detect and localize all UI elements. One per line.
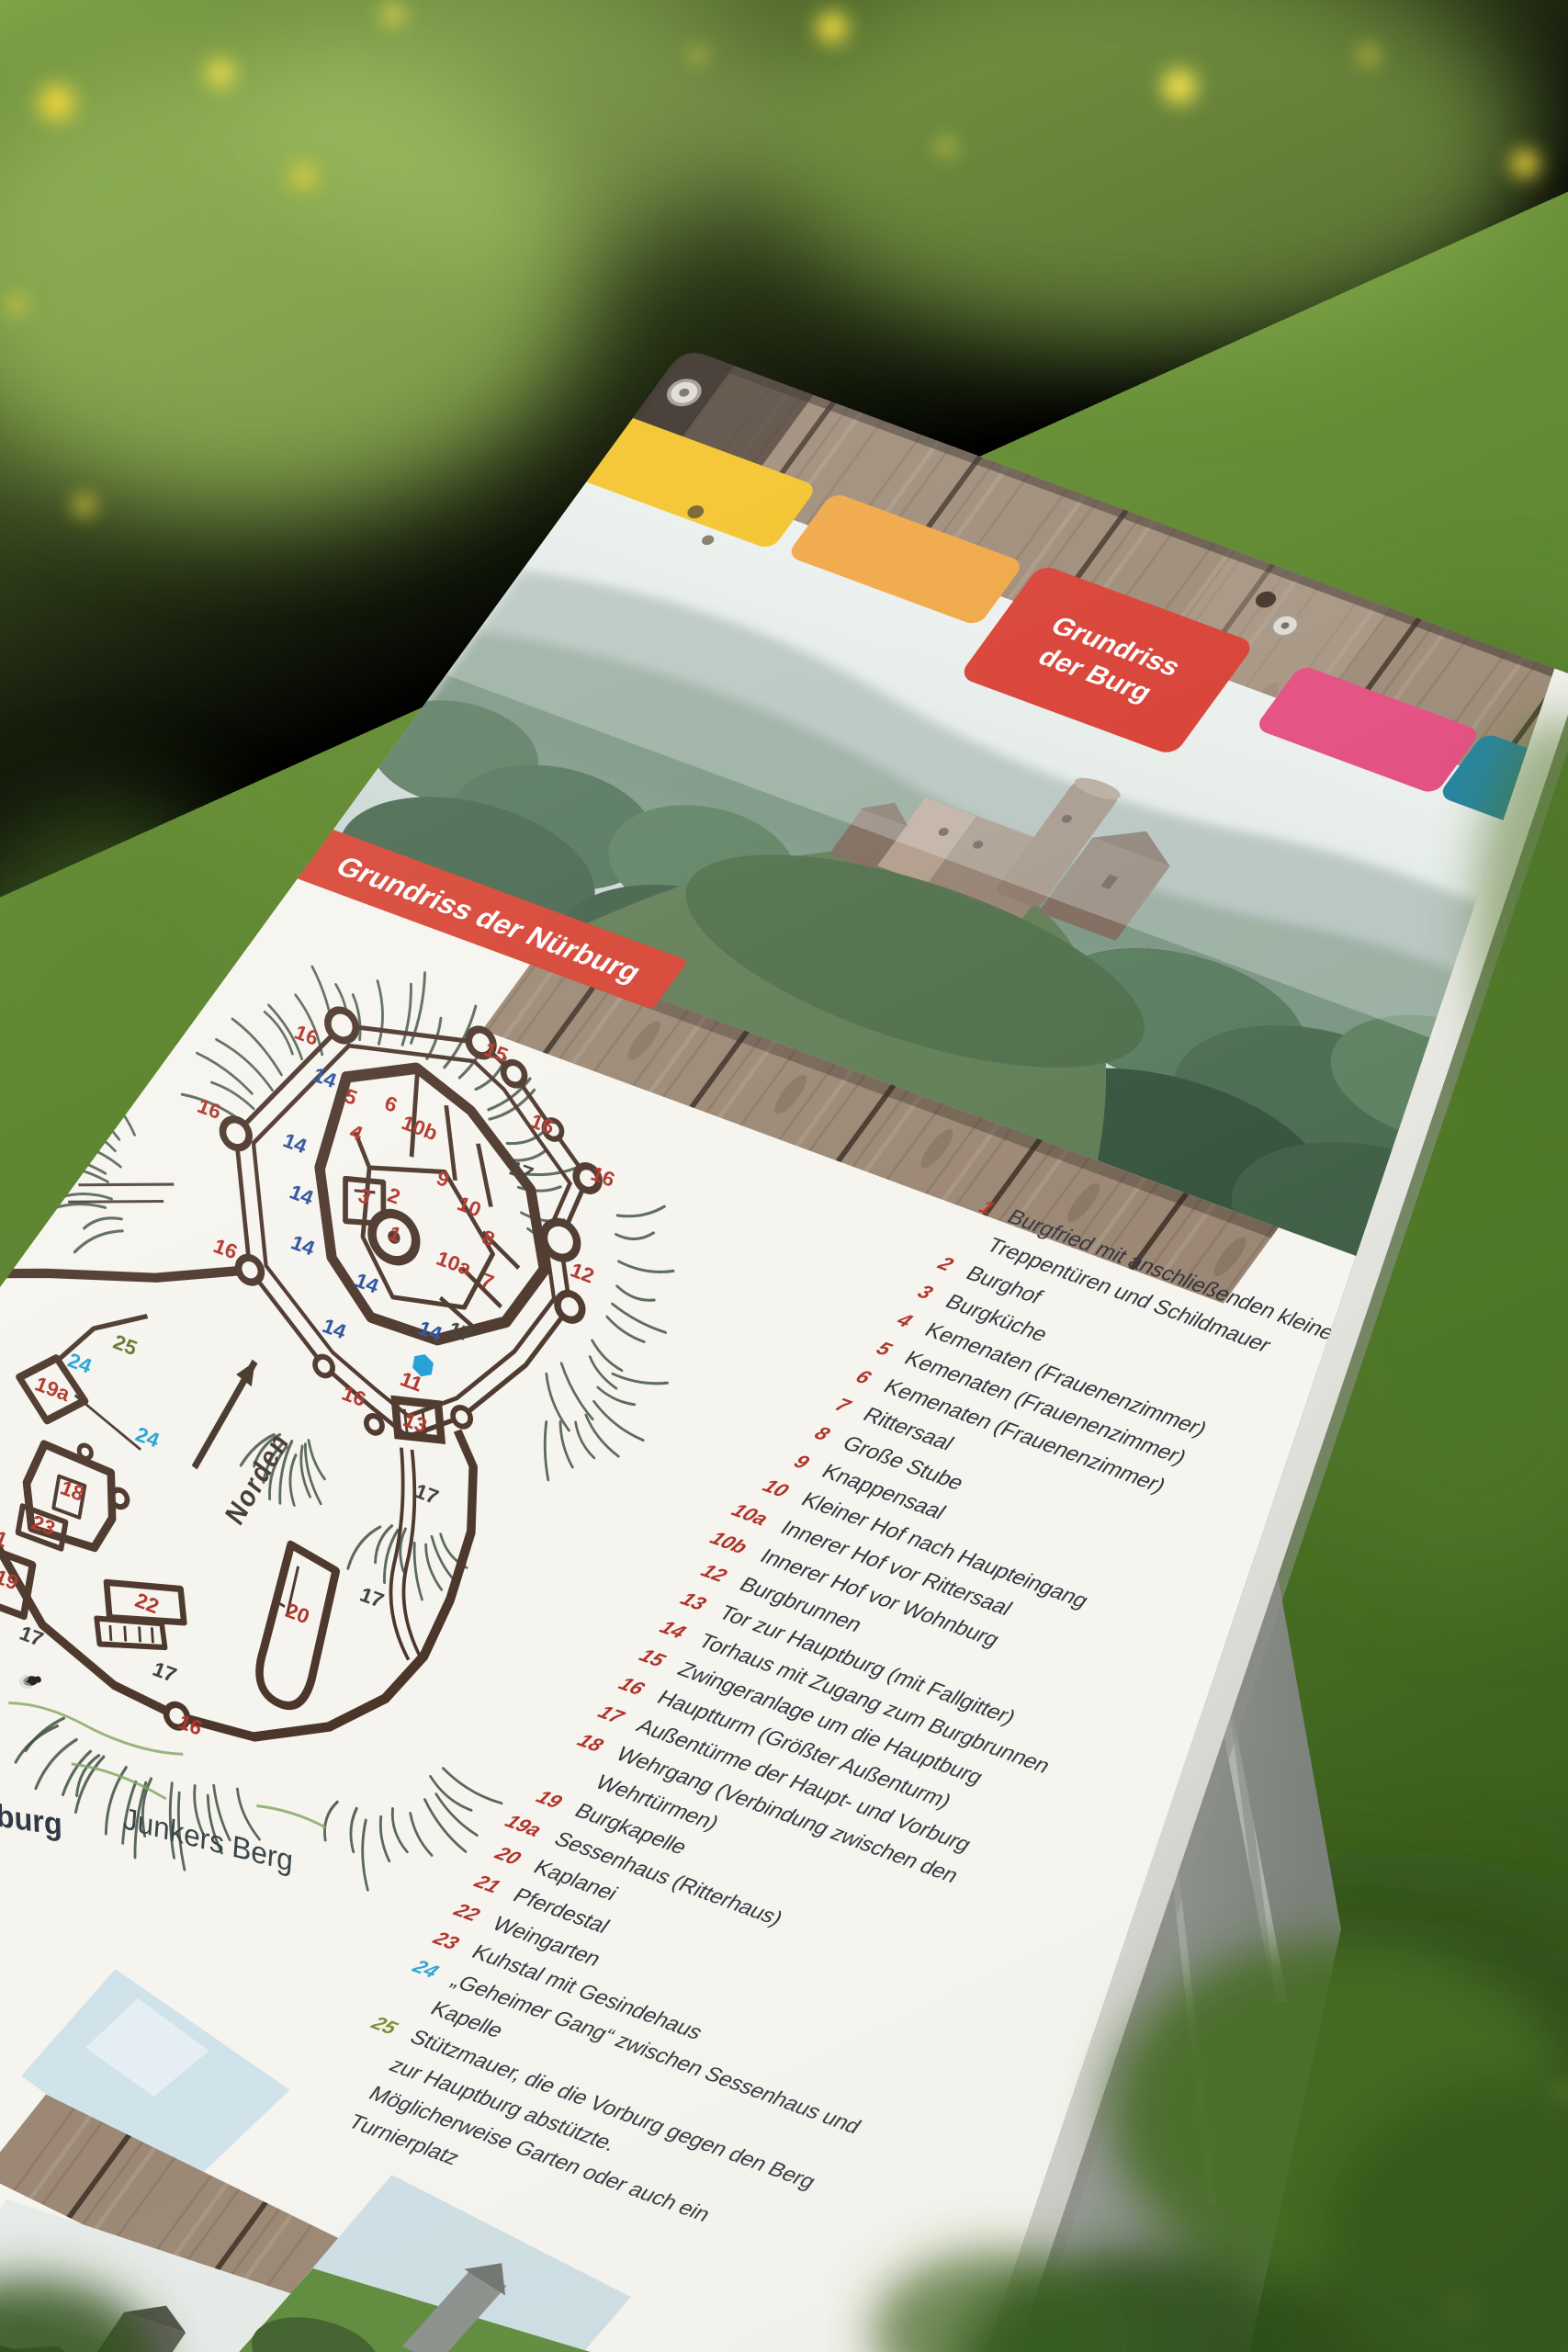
photograph-of-information-sign: Grundriss der Burg Grundriss der Nürburg [0,0,1568,2352]
